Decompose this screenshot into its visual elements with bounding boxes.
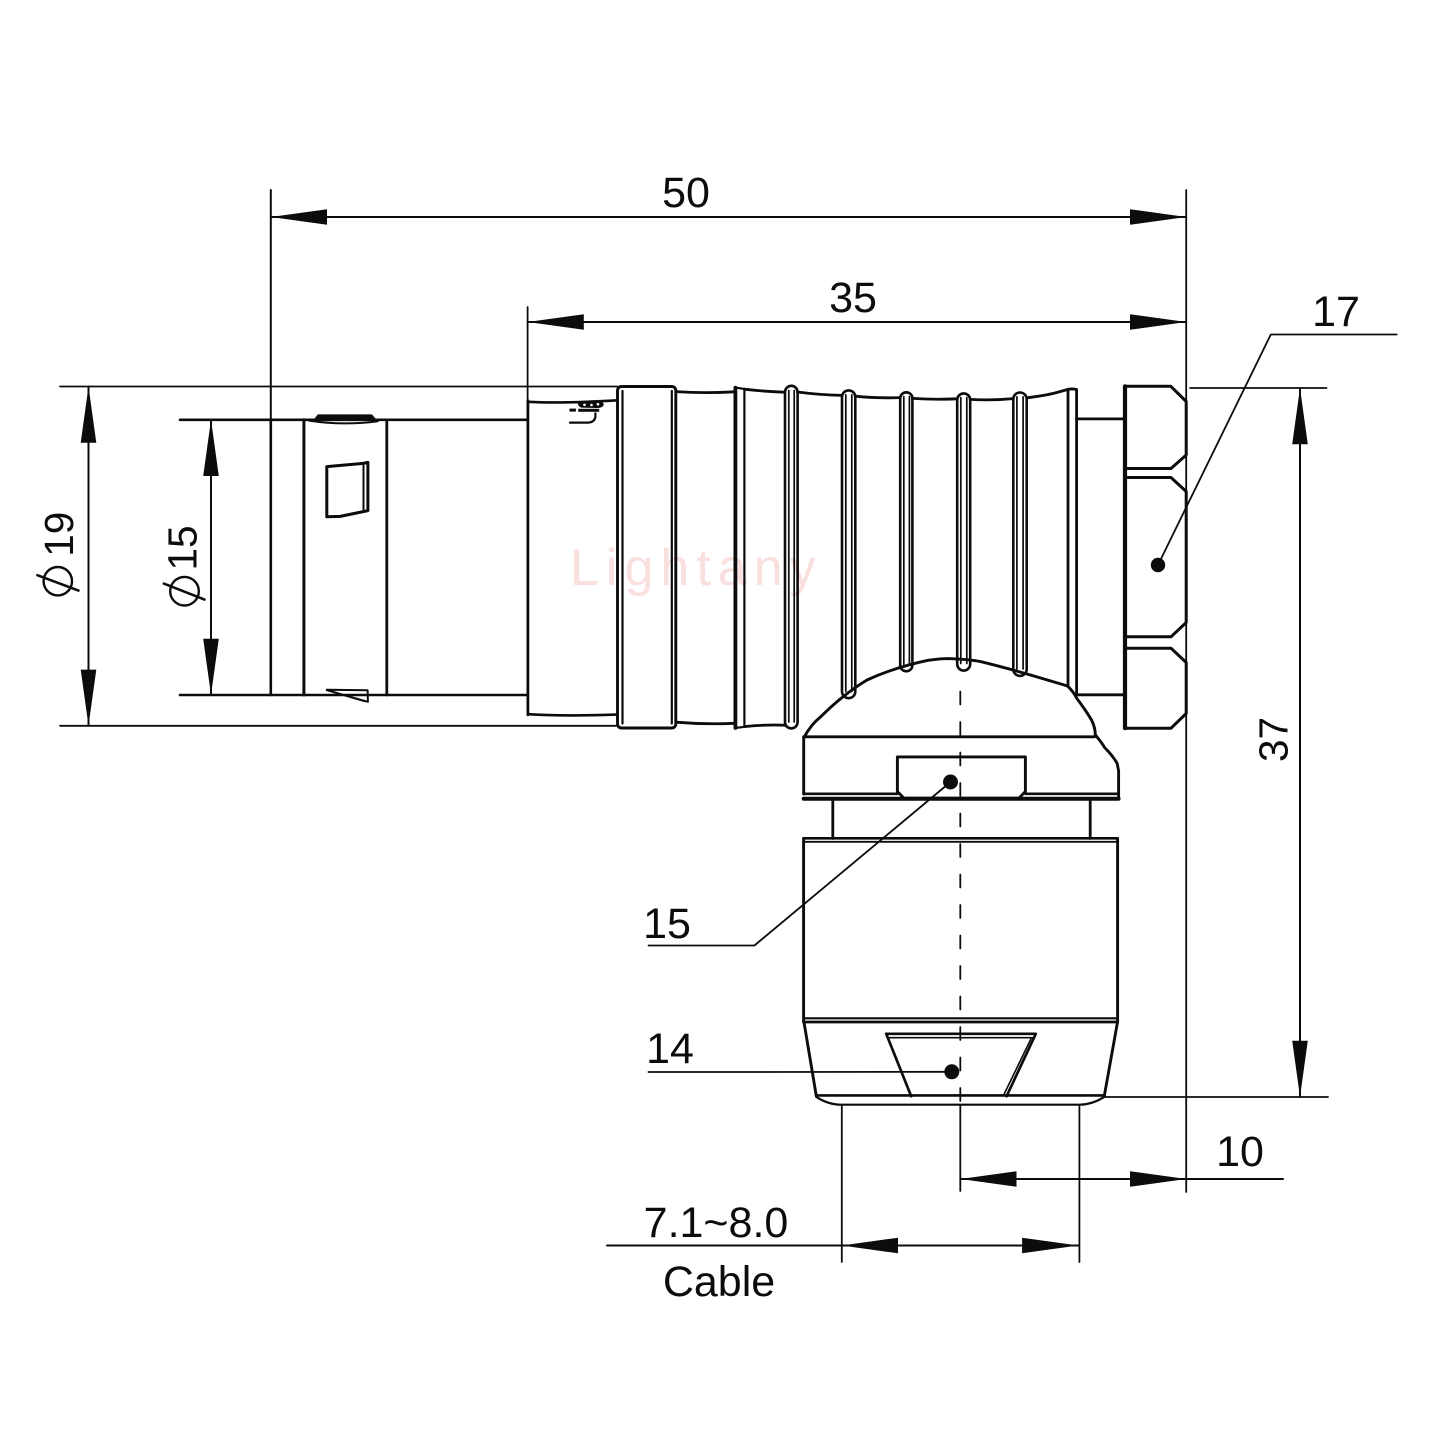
- svg-text:Cable: Cable: [663, 1258, 775, 1306]
- svg-text:Lightany: Lightany: [570, 539, 823, 597]
- svg-text:7.1~8.0: 7.1~8.0: [644, 1199, 789, 1247]
- svg-text:37: 37: [1251, 717, 1297, 762]
- svg-text:35: 35: [829, 274, 877, 322]
- svg-text:15: 15: [643, 900, 691, 948]
- svg-text:14: 14: [646, 1025, 694, 1073]
- svg-text:19: 19: [36, 512, 82, 557]
- svg-text:10: 10: [1216, 1128, 1264, 1176]
- svg-text:15: 15: [160, 525, 206, 570]
- svg-text:17: 17: [1312, 288, 1360, 336]
- svg-text:50: 50: [662, 169, 710, 217]
